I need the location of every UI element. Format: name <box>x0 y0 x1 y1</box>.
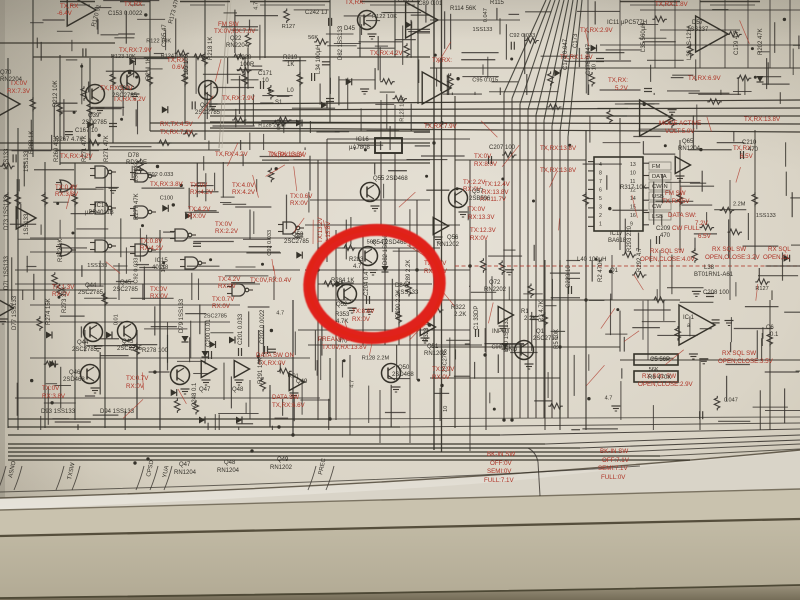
svg-text:C89 0.01: C89 0.01 <box>418 1 443 7</box>
svg-text:Q39: Q39 <box>88 113 100 119</box>
svg-text:Q48: Q48 <box>232 387 244 393</box>
svg-text:10: 10 <box>630 171 636 177</box>
svg-text:TX:0V: TX:0V <box>150 286 168 293</box>
svg-text:R114 56K: R114 56K <box>450 6 476 12</box>
svg-text:RX:13.8V: RX:13.8V <box>482 189 509 196</box>
svg-text:R271 47K: R271 47K <box>82 135 88 162</box>
svg-text:4.7: 4.7 <box>353 264 362 270</box>
svg-text:2SC2785: 2SC2785 <box>112 93 138 99</box>
svg-text:Q60: Q60 <box>118 86 130 92</box>
svg-text:8: 8 <box>599 171 602 177</box>
svg-text:OPEN,CLOSE:3.5V: OPEN,CLOSE:3.5V <box>718 358 774 365</box>
svg-text:C200 0.01: C200 0.01 <box>206 319 212 347</box>
svg-text:C209: C209 <box>656 226 671 232</box>
svg-text:C207 100: C207 100 <box>489 145 516 151</box>
svg-text:D73 1SS133: D73 1SS133 <box>4 195 10 230</box>
svg-text:Q45: Q45 <box>120 280 132 286</box>
svg-text:RN1202: RN1202 <box>270 465 293 471</box>
svg-text:C174 0.047: C174 0.047 <box>563 38 569 70</box>
svg-text:RX:0V: RX:0V <box>212 303 231 310</box>
svg-text:100R: 100R <box>240 62 255 68</box>
svg-text:R278 100: R278 100 <box>142 348 169 354</box>
svg-text:Q55 2SD468: Q55 2SD468 <box>373 176 408 182</box>
svg-text:TX:0V: TX:0V <box>474 153 492 160</box>
svg-text:Q44: Q44 <box>77 340 89 346</box>
svg-text:RX SQL SW: RX SQL SW <box>722 350 756 357</box>
svg-text:RX:0V: RX:0V <box>188 213 207 220</box>
svg-text:C210: C210 <box>742 140 757 146</box>
svg-text:R268 1K: R268 1K <box>29 131 35 154</box>
svg-text:RN2204: RN2204 <box>226 43 249 49</box>
svg-text:RX:0V: RX:0V <box>352 316 371 323</box>
svg-text:10: 10 <box>262 78 269 84</box>
svg-text:2: 2 <box>599 213 602 219</box>
svg-text:TX:4.0V: TX:4.0V <box>232 182 255 189</box>
svg-text:Q57: Q57 <box>472 189 484 195</box>
svg-text:D80 1SS133: D80 1SS133 <box>504 317 510 352</box>
svg-text:TX:0V: TX:0V <box>190 182 208 189</box>
svg-text:C248 0.1: C248 0.1 <box>192 382 198 407</box>
svg-text:Q47: Q47 <box>179 462 191 468</box>
svg-text:470: 470 <box>660 233 671 239</box>
svg-text:Q65: Q65 <box>682 139 694 145</box>
svg-text:TX,RX:5V: TX,RX:5V <box>662 198 690 205</box>
svg-text:0.1: 0.1 <box>770 332 779 338</box>
svg-text:RN1204: RN1204 <box>678 146 701 152</box>
svg-text:BK-IN SW: BK-IN SW <box>487 451 515 458</box>
svg-text:TX,RX: TX,RX <box>60 3 78 10</box>
svg-text:4.7: 4.7 <box>605 395 613 401</box>
svg-text:IC14: IC14 <box>95 203 108 209</box>
svg-text:RX SQL SW: RX SQL SW <box>650 248 684 255</box>
svg-text:2SD468: 2SD468 <box>392 372 414 378</box>
svg-text:TX:12.4V: TX:12.4V <box>484 181 511 188</box>
svg-text:R220: R220 <box>237 55 252 61</box>
svg-text:0.01: 0.01 <box>113 314 119 325</box>
svg-text:R293 220: R293 220 <box>627 225 633 252</box>
svg-text:5: 5 <box>599 196 602 202</box>
svg-text:C165 47: C165 47 <box>162 24 168 47</box>
svg-text:R212 10K: R212 10K <box>53 80 59 107</box>
svg-text:TX,RX:3.8V: TX,RX:3.8V <box>150 181 184 188</box>
svg-text:3: 3 <box>599 205 602 211</box>
svg-text:IC 1: IC 1 <box>683 315 695 321</box>
svg-text:R3 4.7K: R3 4.7K <box>539 300 545 322</box>
svg-text:R274 15K: R274 15K <box>46 298 52 325</box>
svg-text:D93 1SS133: D93 1SS133 <box>41 409 76 415</box>
svg-text:RX,TX:4.5V: RX,TX:4.5V <box>160 121 194 128</box>
svg-text:R6 470K: R6 470K <box>648 375 671 381</box>
svg-text:IC16: IC16 <box>356 137 369 143</box>
svg-text:R277 47K: R277 47K <box>134 193 140 220</box>
svg-text:1SS133: 1SS133 <box>473 27 493 33</box>
svg-text:RX:3.8V: RX:3.8V <box>42 393 66 400</box>
svg-text:C171: C171 <box>258 71 273 77</box>
svg-text:1K: 1K <box>287 62 294 68</box>
svg-text:Q53: Q53 <box>292 232 304 238</box>
svg-text:4.7: 4.7 <box>276 311 284 317</box>
svg-text:C90 1: C90 1 <box>398 0 415 4</box>
svg-text:R291 10K: R291 10K <box>258 357 264 384</box>
svg-text:C201 0.033: C201 0.033 <box>238 313 244 345</box>
svg-text:D82 1SS133: D82 1SS133 <box>338 25 344 60</box>
svg-text:Q49: Q49 <box>296 379 308 385</box>
svg-text:RN1204: RN1204 <box>217 468 240 474</box>
svg-text:TX,RX:4.2V: TX,RX:4.2V <box>370 50 404 57</box>
svg-text:BA618: BA618 <box>608 238 627 244</box>
svg-text:2.2M: 2.2M <box>733 201 746 207</box>
svg-text:C153 0.0022: C153 0.0022 <box>108 11 143 17</box>
svg-text:RN1202: RN1202 <box>424 351 447 357</box>
svg-text:C92 0.033: C92 0.033 <box>148 172 174 178</box>
svg-text:Q22: Q22 <box>230 36 242 42</box>
svg-text:C5 56P: C5 56P <box>650 357 670 363</box>
svg-text:RX:3.8V: RX:3.8V <box>55 191 79 198</box>
svg-text:R273 39K: R273 39K <box>62 286 68 313</box>
svg-text:Q1: Q1 <box>610 268 619 274</box>
svg-text:RN1204: RN1204 <box>174 470 197 476</box>
svg-text:7: 7 <box>599 179 602 185</box>
svg-text:D84: D84 <box>395 283 407 289</box>
svg-text:Q44: Q44 <box>85 283 97 289</box>
svg-text:RD3.9E: RD3.9E <box>126 160 147 166</box>
svg-text:TX,RX:1.8V: TX,RX:1.8V <box>655 1 689 8</box>
svg-text:R317 10K: R317 10K <box>620 185 647 191</box>
svg-text:C92 0.033: C92 0.033 <box>267 230 273 256</box>
svg-text:R218 1K: R218 1K <box>208 37 214 60</box>
svg-text:TX,RX:: TX,RX: <box>345 0 365 6</box>
svg-text:TX,RX:: TX,RX: <box>608 77 628 84</box>
svg-text:TX,RX: TX,RX <box>124 1 142 8</box>
svg-text:RX:2.2V: RX:2.2V <box>215 228 239 235</box>
svg-text:D79 1SS133: D79 1SS133 <box>179 298 185 333</box>
svg-text:2SC2785: 2SC2785 <box>117 346 143 352</box>
svg-text:TX,RX:13.8V: TX,RX:13.8V <box>270 152 307 159</box>
svg-text:RN2204: RN2204 <box>0 77 23 83</box>
svg-text:2SC2785: 2SC2785 <box>82 120 108 126</box>
svg-text:C242 1J: C242 1J <box>305 10 327 16</box>
svg-text:TX:0V: TX:0V <box>215 221 233 228</box>
svg-text:RX:4.2V: RX:4.2V <box>190 189 214 196</box>
svg-text:D57: D57 <box>692 20 704 26</box>
svg-text:TX:0.4V: TX:0.4V <box>55 184 78 191</box>
svg-text:S1: S1 <box>275 100 283 106</box>
svg-text:BT01RN1-A61: BT01RN1-A61 <box>694 272 734 278</box>
svg-text:TX,RX:6.6V: TX,RX:6.6V <box>272 402 306 409</box>
svg-text:D7L 1SS133: D7L 1SS133 <box>4 256 10 290</box>
svg-text:C165 100: C165 100 <box>184 53 190 80</box>
svg-text:R289 2.2K: R289 2.2K <box>406 260 412 288</box>
svg-text:TX,RX:13.8V: TX,RX:13.8V <box>540 167 577 174</box>
svg-text:RX:0V: RX:0V <box>126 383 145 390</box>
svg-text:2SC2785: 2SC2785 <box>78 290 104 296</box>
svg-text:Q50: Q50 <box>398 365 410 371</box>
svg-text:OFF:0V: OFF:0V <box>490 460 513 467</box>
svg-text:C204 0.47: C204 0.47 <box>364 268 370 296</box>
svg-text:TX:0V,RX:0.4V: TX:0V,RX:0.4V <box>250 277 292 284</box>
svg-text:R290 2.2K: R290 2.2K <box>396 290 402 318</box>
svg-text:FM SW: FM SW <box>218 21 239 28</box>
svg-text:Q51: Q51 <box>427 344 439 350</box>
svg-text:TX,RX:7.9V: TX,RX:7.9V <box>119 47 153 54</box>
svg-text:TX:0.6V: TX:0.6V <box>290 193 313 200</box>
svg-text:C100: C100 <box>160 196 173 202</box>
svg-text:TX,RX:13.8V: TX,RX:13.8V <box>540 145 577 152</box>
svg-text:2SC2785: 2SC2785 <box>113 287 139 293</box>
svg-text:R322: R322 <box>451 305 466 311</box>
svg-text:TX:0V: TX:0V <box>42 385 60 392</box>
svg-text:TX:4.2V: TX:4.2V <box>218 276 241 283</box>
svg-text:RX:0V: RX:0V <box>290 200 309 207</box>
svg-text:FULL:7.1V: FULL:7.1V <box>484 477 514 484</box>
svg-text:Q1: Q1 <box>536 329 545 335</box>
svg-text:0.047: 0.047 <box>724 397 738 403</box>
svg-text:R123 10K: R123 10K <box>111 54 136 60</box>
svg-text:RX:7.3V: RX:7.3V <box>7 88 31 95</box>
svg-text:R292 4.7: R292 4.7 <box>637 247 643 272</box>
svg-text:5.2V: 5.2V <box>615 85 629 92</box>
svg-text:6.5V: 6.5V <box>740 153 754 160</box>
svg-text:L36 LS-121A: L36 LS-121A <box>687 25 693 60</box>
svg-text:SEMI:7.1V: SEMI:7.1V <box>598 465 628 472</box>
svg-text:10: 10 <box>443 406 449 412</box>
svg-text:SEMI:0V: SEMI:0V <box>487 468 512 475</box>
svg-text:DATA SW:: DATA SW: <box>668 212 697 219</box>
svg-text:Q45: Q45 <box>122 339 134 345</box>
svg-text:TX:2.9V: TX:2.9V <box>432 366 455 373</box>
svg-text:FM: FM <box>652 164 661 170</box>
svg-text:2.2K: 2.2K <box>524 316 536 322</box>
svg-text:1SS133: 1SS133 <box>24 150 30 172</box>
svg-text:2SC2785: 2SC2785 <box>72 347 98 353</box>
svg-text:6: 6 <box>599 188 602 194</box>
svg-text:R122 10K: R122 10K <box>372 14 397 20</box>
svg-text:1SS133: 1SS133 <box>87 263 107 269</box>
svg-text:RX:0V: RX:0V <box>470 235 489 242</box>
svg-text:2SB596: 2SB596 <box>469 196 491 202</box>
svg-text:TX,RX:4.2V: TX,RX:4.2V <box>60 153 94 160</box>
svg-text:RX SQL SW: RX SQL SW <box>712 246 746 253</box>
svg-text:IC17: IC17 <box>610 231 623 237</box>
svg-text:C223 10: C223 10 <box>566 265 572 288</box>
svg-text:Q56: Q56 <box>447 235 459 241</box>
svg-text:TX:0V,RX:13.8V: TX:0V,RX:13.8V <box>322 344 368 351</box>
svg-text:2SC2785: 2SC2785 <box>284 239 310 245</box>
svg-text:TX:12.3V: TX:12.3V <box>470 227 497 234</box>
svg-text:RX:0V: RX:0V <box>150 293 169 300</box>
svg-text:R115: R115 <box>490 0 505 6</box>
svg-text:TX,RX:7.9V: TX,RX:7.9V <box>424 123 458 130</box>
svg-text:RX:8.0V: RX:8.0V <box>474 161 498 168</box>
svg-text:R353: R353 <box>335 312 350 318</box>
svg-text:RX SQL: RX SQL <box>768 246 791 253</box>
svg-text:R269 43K: R269 43K <box>54 135 60 162</box>
svg-text:C173: C173 <box>573 33 579 48</box>
svg-text:OPEN,CLOSE:2.9V: OPEN,CLOSE:2.9V <box>638 381 694 388</box>
svg-text:-6.4V: -6.4V <box>57 10 73 17</box>
svg-text:DATA: DATA <box>652 174 667 180</box>
svg-text:C92 0.033: C92 0.033 <box>509 33 535 39</box>
svg-text:D77 1SS133: D77 1SS133 <box>12 295 18 330</box>
svg-text:Q47: Q47 <box>199 387 211 393</box>
svg-text:C95 0.015: C95 0.015 <box>472 77 498 83</box>
svg-text:Q49: Q49 <box>277 457 289 463</box>
svg-text:RX:4.2V: RX:4.2V <box>140 245 164 252</box>
svg-text:TX:0V,RX:7.0V: TX:0V,RX:7.0V <box>214 28 256 35</box>
svg-text:L0: L0 <box>287 88 294 94</box>
svg-text:R128 2.2M: R128 2.2M <box>258 123 286 129</box>
svg-text:40118: 40118 <box>152 265 169 271</box>
svg-text:2SC2785: 2SC2785 <box>204 314 227 320</box>
svg-text:TX,RX:13.8V: TX,RX:13.8V <box>744 116 781 123</box>
svg-text:L34 100μH: L34 100μH <box>316 45 322 74</box>
svg-text:10: 10 <box>591 64 597 70</box>
svg-text:6.5V: 6.5V <box>698 233 712 240</box>
svg-text:TX:13.2V: TX:13.2V <box>317 216 324 243</box>
svg-text:2SD468: 2SD468 <box>63 377 85 383</box>
svg-text:TX,RX:: TX,RX: <box>432 57 452 64</box>
svg-text:Q54 2SD468: Q54 2SD468 <box>372 240 407 246</box>
svg-text:OPEN,CLOSE:4.0V: OPEN,CLOSE:4.0V <box>640 256 696 263</box>
svg-text:DATA SW: DATA SW <box>272 394 299 401</box>
svg-text:1: 1 <box>599 222 602 228</box>
svg-text:TX,RX:6.9V: TX,RX:6.9V <box>688 75 722 82</box>
svg-text:R271 47K: R271 47K <box>104 135 110 162</box>
svg-text:R128 2.2M: R128 2.2M <box>362 356 390 362</box>
svg-text:0.047: 0.047 <box>483 8 489 22</box>
svg-text:R202 47K: R202 47K <box>758 28 764 55</box>
svg-text:C6: C6 <box>766 325 774 331</box>
svg-text:FM SW: FM SW <box>665 190 686 197</box>
svg-text:4.7: 4.7 <box>349 380 355 388</box>
svg-text:BK-IN SW: BK-IN SW <box>600 448 628 455</box>
svg-text:OFF:7.1V: OFF:7.1V <box>602 457 630 464</box>
svg-text:C175 0.047: C175 0.047 <box>586 43 592 75</box>
svg-text:RN1202: RN1202 <box>437 242 460 248</box>
svg-text:2SC2785: 2SC2785 <box>195 110 221 116</box>
svg-text:D78: D78 <box>128 153 140 159</box>
svg-text:Q46: Q46 <box>69 370 81 376</box>
svg-text:R283: R283 <box>349 257 364 263</box>
svg-text:OPEN,CLOSE:3.2V: OPEN,CLOSE:3.2V <box>705 254 761 261</box>
svg-text:TX,RX:7.9V: TX,RX:7.9V <box>222 95 256 102</box>
svg-text:C208 100: C208 100 <box>703 290 730 296</box>
svg-text:TX:2.2V: TX:2.2V <box>463 179 486 186</box>
svg-text:D45: D45 <box>344 26 356 32</box>
svg-text:RX:0V: RX:0V <box>432 374 451 381</box>
svg-text:VOLT:5.0V: VOLT:5.0V <box>665 128 695 135</box>
svg-text:TX:4.2V: TX:4.2V <box>188 206 211 213</box>
svg-text:R2 470K: R2 470K <box>598 259 604 282</box>
svg-text:C202 0.0022: C202 0.0022 <box>260 309 266 344</box>
svg-text:C179 4.7: C179 4.7 <box>734 30 740 55</box>
svg-text:C167 10: C167 10 <box>75 128 98 134</box>
svg-text:R1: R1 <box>521 309 529 315</box>
svg-text:OPEN,CL: OPEN,CL <box>763 254 791 261</box>
svg-text:CW FULL:: CW FULL: <box>672 225 701 232</box>
svg-text:L38: L38 <box>704 265 715 271</box>
svg-text:Q52: Q52 <box>336 302 348 308</box>
svg-text:R127: R127 <box>282 24 295 30</box>
svg-text:B2: B2 <box>134 167 142 173</box>
svg-text:FULL:0V: FULL:0V <box>601 474 626 481</box>
svg-text:TX:0.7V: TX:0.7V <box>212 296 235 303</box>
svg-text:C1 33DP: C1 33DP <box>474 306 480 330</box>
svg-text:TX,RX:7.2V: TX,RX:7.2V <box>160 129 194 136</box>
svg-text:470: 470 <box>748 147 759 153</box>
svg-text:R211 1K: R211 1K <box>146 57 152 80</box>
svg-text:μPD4011B: μPD4011B <box>85 210 114 216</box>
svg-text:Q70: Q70 <box>0 70 12 76</box>
svg-text:C92 0.033: C92 0.033 <box>134 258 140 284</box>
svg-text:R219: R219 <box>283 55 298 61</box>
svg-text:4: 4 <box>599 162 602 168</box>
svg-text:TX:8.6V: TX:8.6V <box>352 308 375 315</box>
svg-text:TX:0V: TX:0V <box>468 206 486 213</box>
svg-text:RX:0V: RX:0V <box>218 283 237 290</box>
svg-text:1SS133: 1SS133 <box>756 213 776 219</box>
svg-text:MODE ACTIVE: MODE ACTIVE <box>659 120 701 127</box>
svg-text:R284 1K: R284 1K <box>331 278 354 284</box>
svg-text:R5 10K: R5 10K <box>554 329 560 349</box>
svg-text:4.7: 4.7 <box>254 2 260 10</box>
svg-text:IC15: IC15 <box>155 258 168 264</box>
svg-text:1SS133: 1SS133 <box>4 148 10 170</box>
svg-text:1SS133: 1SS133 <box>24 213 30 235</box>
svg-text:L35 560μH: L35 560μH <box>641 23 647 52</box>
svg-text:μA7808: μA7808 <box>349 145 370 151</box>
svg-text:R272 1K: R272 1K <box>58 239 64 262</box>
svg-text:16: 16 <box>630 213 636 219</box>
svg-text:RX:13.3V: RX:13.3V <box>468 214 495 221</box>
svg-text:Q48: Q48 <box>224 460 236 466</box>
svg-text:TX:0.7V: TX:0.7V <box>126 375 149 382</box>
svg-text:RN2202: RN2202 <box>484 287 507 293</box>
svg-text:TX:0.8V: TX:0.8V <box>140 238 163 245</box>
svg-text:RX:4.2V: RX:4.2V <box>232 189 256 196</box>
svg-text:Q72: Q72 <box>489 280 501 286</box>
svg-text:13: 13 <box>630 162 636 168</box>
svg-text:2.2K: 2.2K <box>454 312 466 318</box>
